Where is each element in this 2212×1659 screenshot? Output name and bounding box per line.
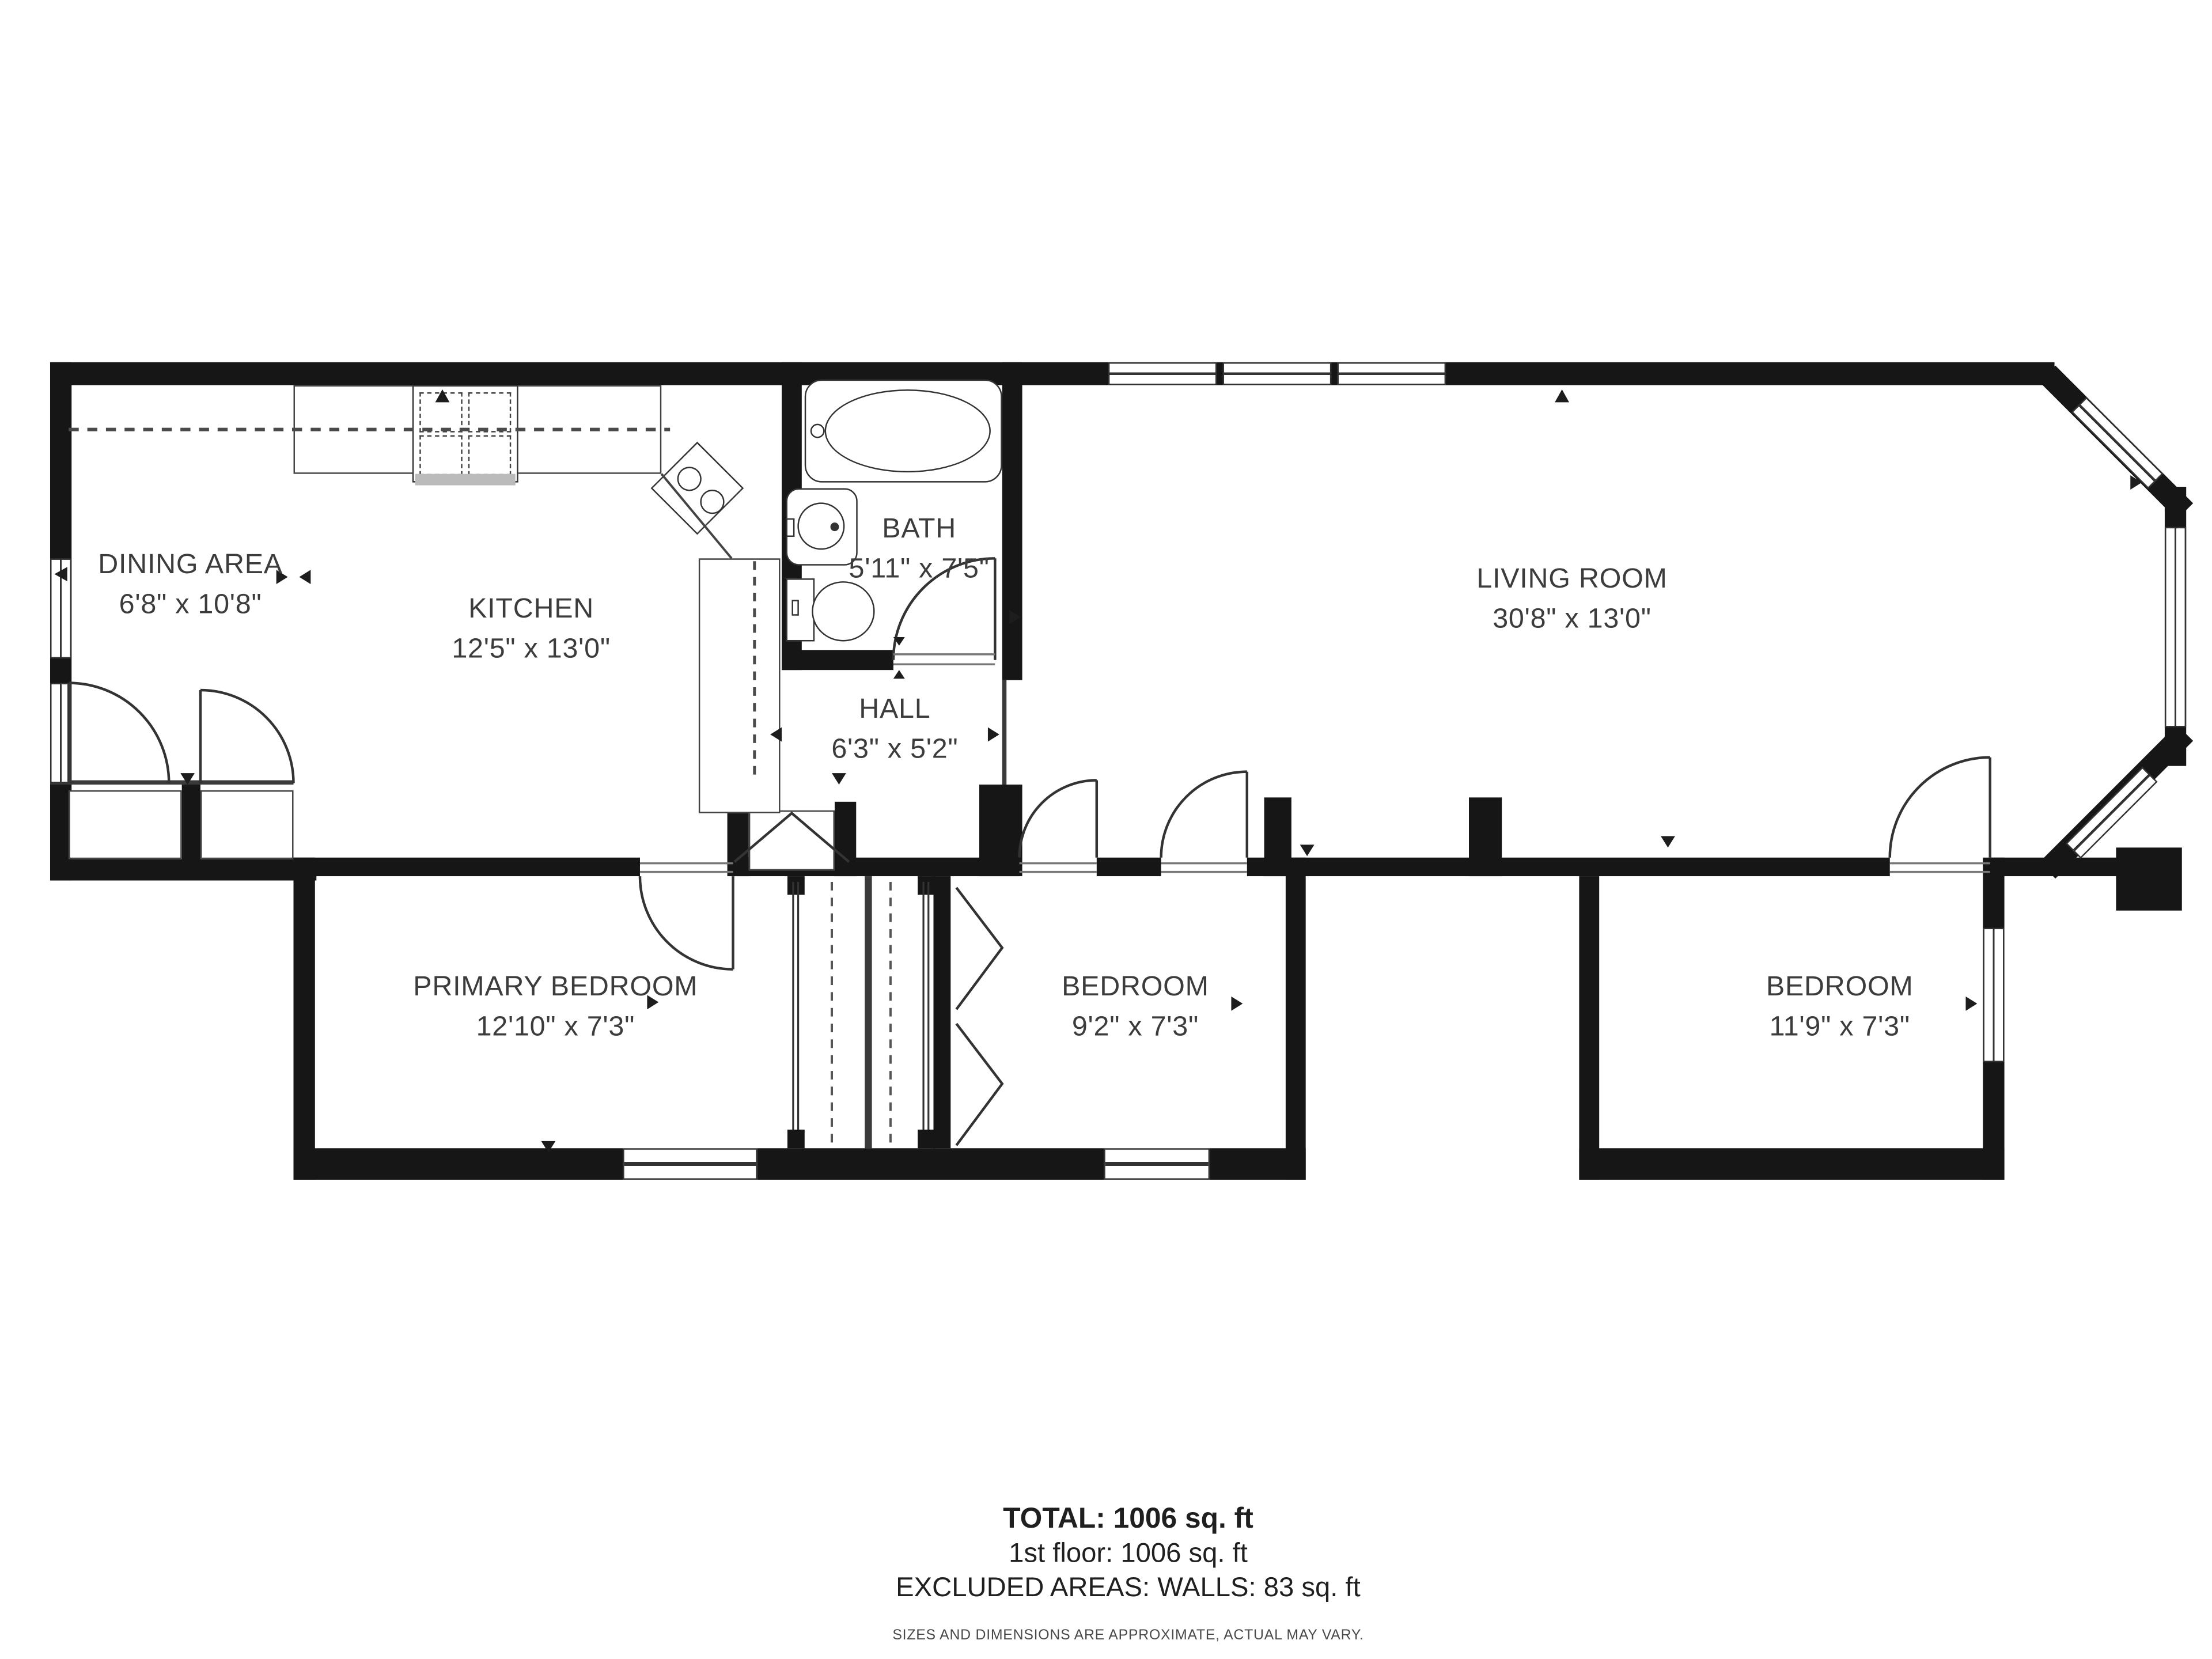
window-bedroom3-right: [1983, 928, 2004, 1063]
corner-sink-basin: [677, 467, 702, 491]
stove-burner: [468, 435, 512, 476]
toilet-bowl-icon: [812, 581, 874, 641]
stove-burner: [468, 392, 512, 433]
room-label-bath: BATH 5'11" x 7'5": [849, 510, 990, 590]
closet-channel-post: [933, 876, 950, 1148]
wall-primary-left: [294, 858, 315, 1180]
floor-area-text: 1st floor: 1006 sq. ft: [892, 1539, 1363, 1571]
closet-left-box: [69, 790, 181, 859]
window-bay-bottom-diagonal: [2066, 767, 2158, 859]
floor-plan-canvas: DINING AREA 6'8" x 10'8" KITCHEN 12'5" x…: [0, 0, 2212, 1659]
room-dims: 6'3" x 5'2": [831, 730, 958, 770]
stove-burner: [419, 392, 463, 433]
room-name: DINING AREA: [98, 546, 283, 586]
room-label-living: LIVING ROOM 30'8" x 13'0": [1476, 560, 1667, 640]
door-arc-primary-bedroom: [640, 876, 733, 969]
window-bedroom2-bottom: [1104, 1148, 1210, 1180]
window-bay-right: [2165, 527, 2186, 728]
room-name: BEDROOM: [1062, 968, 1209, 1008]
window-living-triple: [1108, 362, 1446, 385]
excluded-area-text: EXCLUDED AREAS: WALLS: 83 sq. ft: [892, 1573, 1363, 1605]
window-pane: [1337, 362, 1446, 385]
wall-bath-bottom: [782, 650, 893, 670]
closet-bottom-wall: [50, 859, 316, 880]
room-label-hall: HALL 6'3" x 5'2": [831, 691, 958, 770]
door-arc-closet-left: [69, 683, 169, 783]
room-name: BEDROOM: [1766, 968, 1914, 1008]
window-pane: [1108, 362, 1217, 385]
wall-bottom-segment: [1579, 1148, 2004, 1180]
closet-rod-dashed-line: [832, 882, 891, 1142]
room-dims: 6'8" x 10'8": [98, 586, 283, 626]
closet-channel-divider: [865, 876, 872, 1148]
bathtub-basin: [825, 389, 991, 472]
stove-front-strip: [415, 474, 516, 486]
alcove-box: [749, 810, 835, 870]
closet-right-box: [200, 790, 294, 859]
room-label-bedroom2: BEDROOM 9'2" x 7'3": [1062, 968, 1209, 1048]
total-area-text: TOTAL: 1006 sq. ft: [892, 1503, 1363, 1536]
floor-plan: DINING AREA 6'8" x 10'8" KITCHEN 12'5" x…: [0, 0, 2212, 1658]
room-label-dining: DINING AREA 6'8" x 10'8": [98, 546, 283, 626]
room-label-bedroom3: BEDROOM 11'9" x 7'3": [1766, 968, 1914, 1048]
bifold-door-chevrons: [956, 888, 1002, 1145]
wall-band-segment: [1097, 858, 1161, 876]
door-arc-closet-right: [200, 690, 294, 783]
closet-header-line: [50, 781, 294, 785]
window-bay-top-diagonal: [2071, 397, 2164, 489]
room-dims: 12'10" x 7'3": [413, 1008, 698, 1048]
room-name: PRIMARY BEDROOM: [413, 968, 698, 1008]
sliding-door-track: [793, 882, 929, 1130]
door-arc-bedroom2-b: [1161, 772, 1247, 858]
vanity-drain: [831, 522, 839, 531]
area-summary: TOTAL: 1006 sq. ft 1st floor: 1006 sq. f…: [892, 1503, 1363, 1644]
wall-bottom-segment: [294, 1148, 623, 1180]
room-dims: 11'9" x 7'3": [1766, 1008, 1914, 1048]
wall-band-segment: [294, 858, 640, 876]
stove-burner: [419, 435, 463, 476]
room-name: KITCHEN: [452, 590, 611, 630]
wall-bedroom2-right: [1286, 858, 1306, 1180]
room-name: BATH: [849, 510, 990, 550]
door-swing-overlay: [0, 0, 2212, 1658]
kitchen-counter-side: [699, 558, 781, 813]
toilet-tank-icon: [786, 578, 815, 641]
room-label-kitchen: KITCHEN 12'5" x 13'0": [452, 590, 611, 670]
corner-sink-basin: [700, 490, 724, 514]
room-name: HALL: [831, 691, 958, 730]
wall-band-segment: [1247, 858, 1890, 876]
closet-track-cap: [918, 1130, 935, 1148]
room-label-primary-bedroom: PRIMARY BEDROOM 12'10" x 7'3": [413, 968, 698, 1048]
room-name: LIVING ROOM: [1476, 560, 1667, 600]
wall-bottom-segment: [757, 1148, 1104, 1180]
room-dims: 9'2" x 7'3": [1062, 1008, 1209, 1048]
alcove-post: [835, 802, 856, 876]
vanity-tap: [786, 518, 794, 537]
window-left-2: [50, 683, 71, 783]
disclaimer-text: SIZES AND DIMENSIONS ARE APPROXIMATE, AC…: [892, 1628, 1363, 1643]
wall-top: [50, 362, 2055, 385]
window-primary-bottom: [623, 1148, 757, 1180]
toilet-button: [791, 600, 798, 615]
wall-pier: [1469, 797, 1502, 876]
wall-hall-right-thin: [1002, 680, 1006, 790]
door-arc-bedroom3: [1890, 757, 1990, 858]
closet-track-cap: [787, 1130, 805, 1148]
room-dims: 30'8" x 13'0": [1476, 600, 1667, 639]
wall-bay-corner-chunk: [2116, 847, 2181, 910]
window-left-1: [50, 558, 71, 658]
closet-track-cap: [918, 876, 935, 895]
closet-center-post: [182, 785, 200, 862]
wall-bottom-segment: [1210, 1148, 1306, 1180]
closet-track-cap: [787, 876, 805, 895]
wall-bedroom3-left: [1579, 876, 1599, 1180]
room-dims: 5'11" x 7'5": [849, 550, 990, 589]
door-arc-bedroom2-a: [1020, 781, 1097, 858]
wall-bath-right: [1002, 362, 1022, 680]
room-dims: 12'5" x 13'0": [452, 630, 611, 670]
window-pane: [1223, 362, 1332, 385]
bathtub-faucet: [810, 424, 825, 438]
